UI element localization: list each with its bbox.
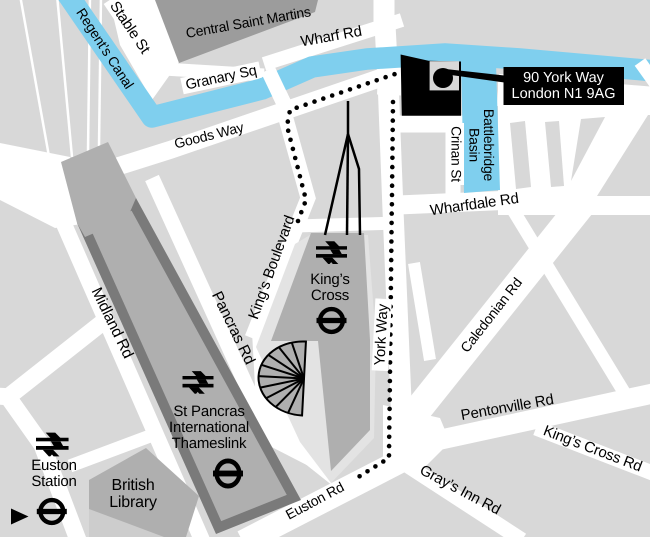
svg-text:90 York Way: 90 York Way: [523, 70, 605, 86]
svg-text:St Pancras: St Pancras: [173, 403, 244, 420]
svg-text:Cross: Cross: [311, 287, 349, 304]
svg-text:British: British: [111, 477, 154, 494]
svg-text:International: International: [169, 419, 249, 436]
svg-text:Thameslink: Thameslink: [172, 435, 247, 452]
svg-text:York Way: York Way: [371, 303, 391, 366]
svg-text:Library: Library: [109, 494, 157, 511]
svg-text:Basin: Basin: [467, 128, 483, 162]
svg-text:King’s: King’s: [310, 271, 349, 288]
svg-text:London N1 9AG: London N1 9AG: [512, 86, 616, 102]
svg-text:Euston: Euston: [31, 457, 77, 474]
svg-text:Crinan St: Crinan St: [449, 126, 464, 182]
svg-text:Station: Station: [31, 473, 76, 490]
